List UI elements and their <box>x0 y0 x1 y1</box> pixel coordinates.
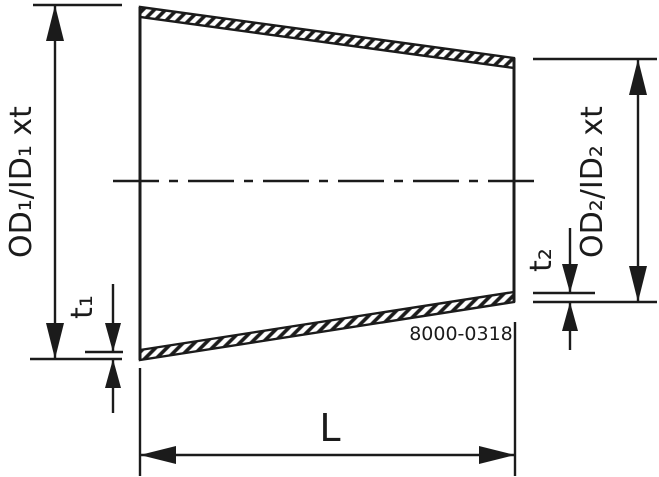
part-number: 8000-0318 <box>409 323 513 345</box>
od1-arrow-down-icon <box>46 323 64 359</box>
reducer-body <box>113 7 540 360</box>
length-label: L <box>319 406 340 450</box>
od2-arrow-down-icon <box>629 266 647 302</box>
od1-label: OD₁/ID₁ xt <box>4 106 39 258</box>
top-wall-section <box>140 7 514 68</box>
reducer-technical-drawing: OD₁/ID₁ xt t₁ OD₂/ID₂ xt t₂ <box>0 0 659 477</box>
t2-label: t₂ <box>524 248 559 272</box>
t2-arrow-up-icon <box>562 302 578 331</box>
od1-arrow-up-icon <box>46 5 64 41</box>
od2-arrow-up-icon <box>629 59 647 95</box>
od2-label: OD₂/ID₂ xt <box>575 106 610 258</box>
t1-label: t₁ <box>65 295 100 319</box>
length-arrow-left-icon <box>140 446 176 464</box>
length-arrow-right-icon <box>479 446 515 464</box>
t1-arrow-up-icon <box>105 359 121 388</box>
t1-arrow-down-icon <box>105 323 121 352</box>
t2-arrow-down-icon <box>562 264 578 293</box>
drawing-canvas: OD₁/ID₁ xt t₁ OD₂/ID₂ xt t₂ <box>0 0 659 477</box>
